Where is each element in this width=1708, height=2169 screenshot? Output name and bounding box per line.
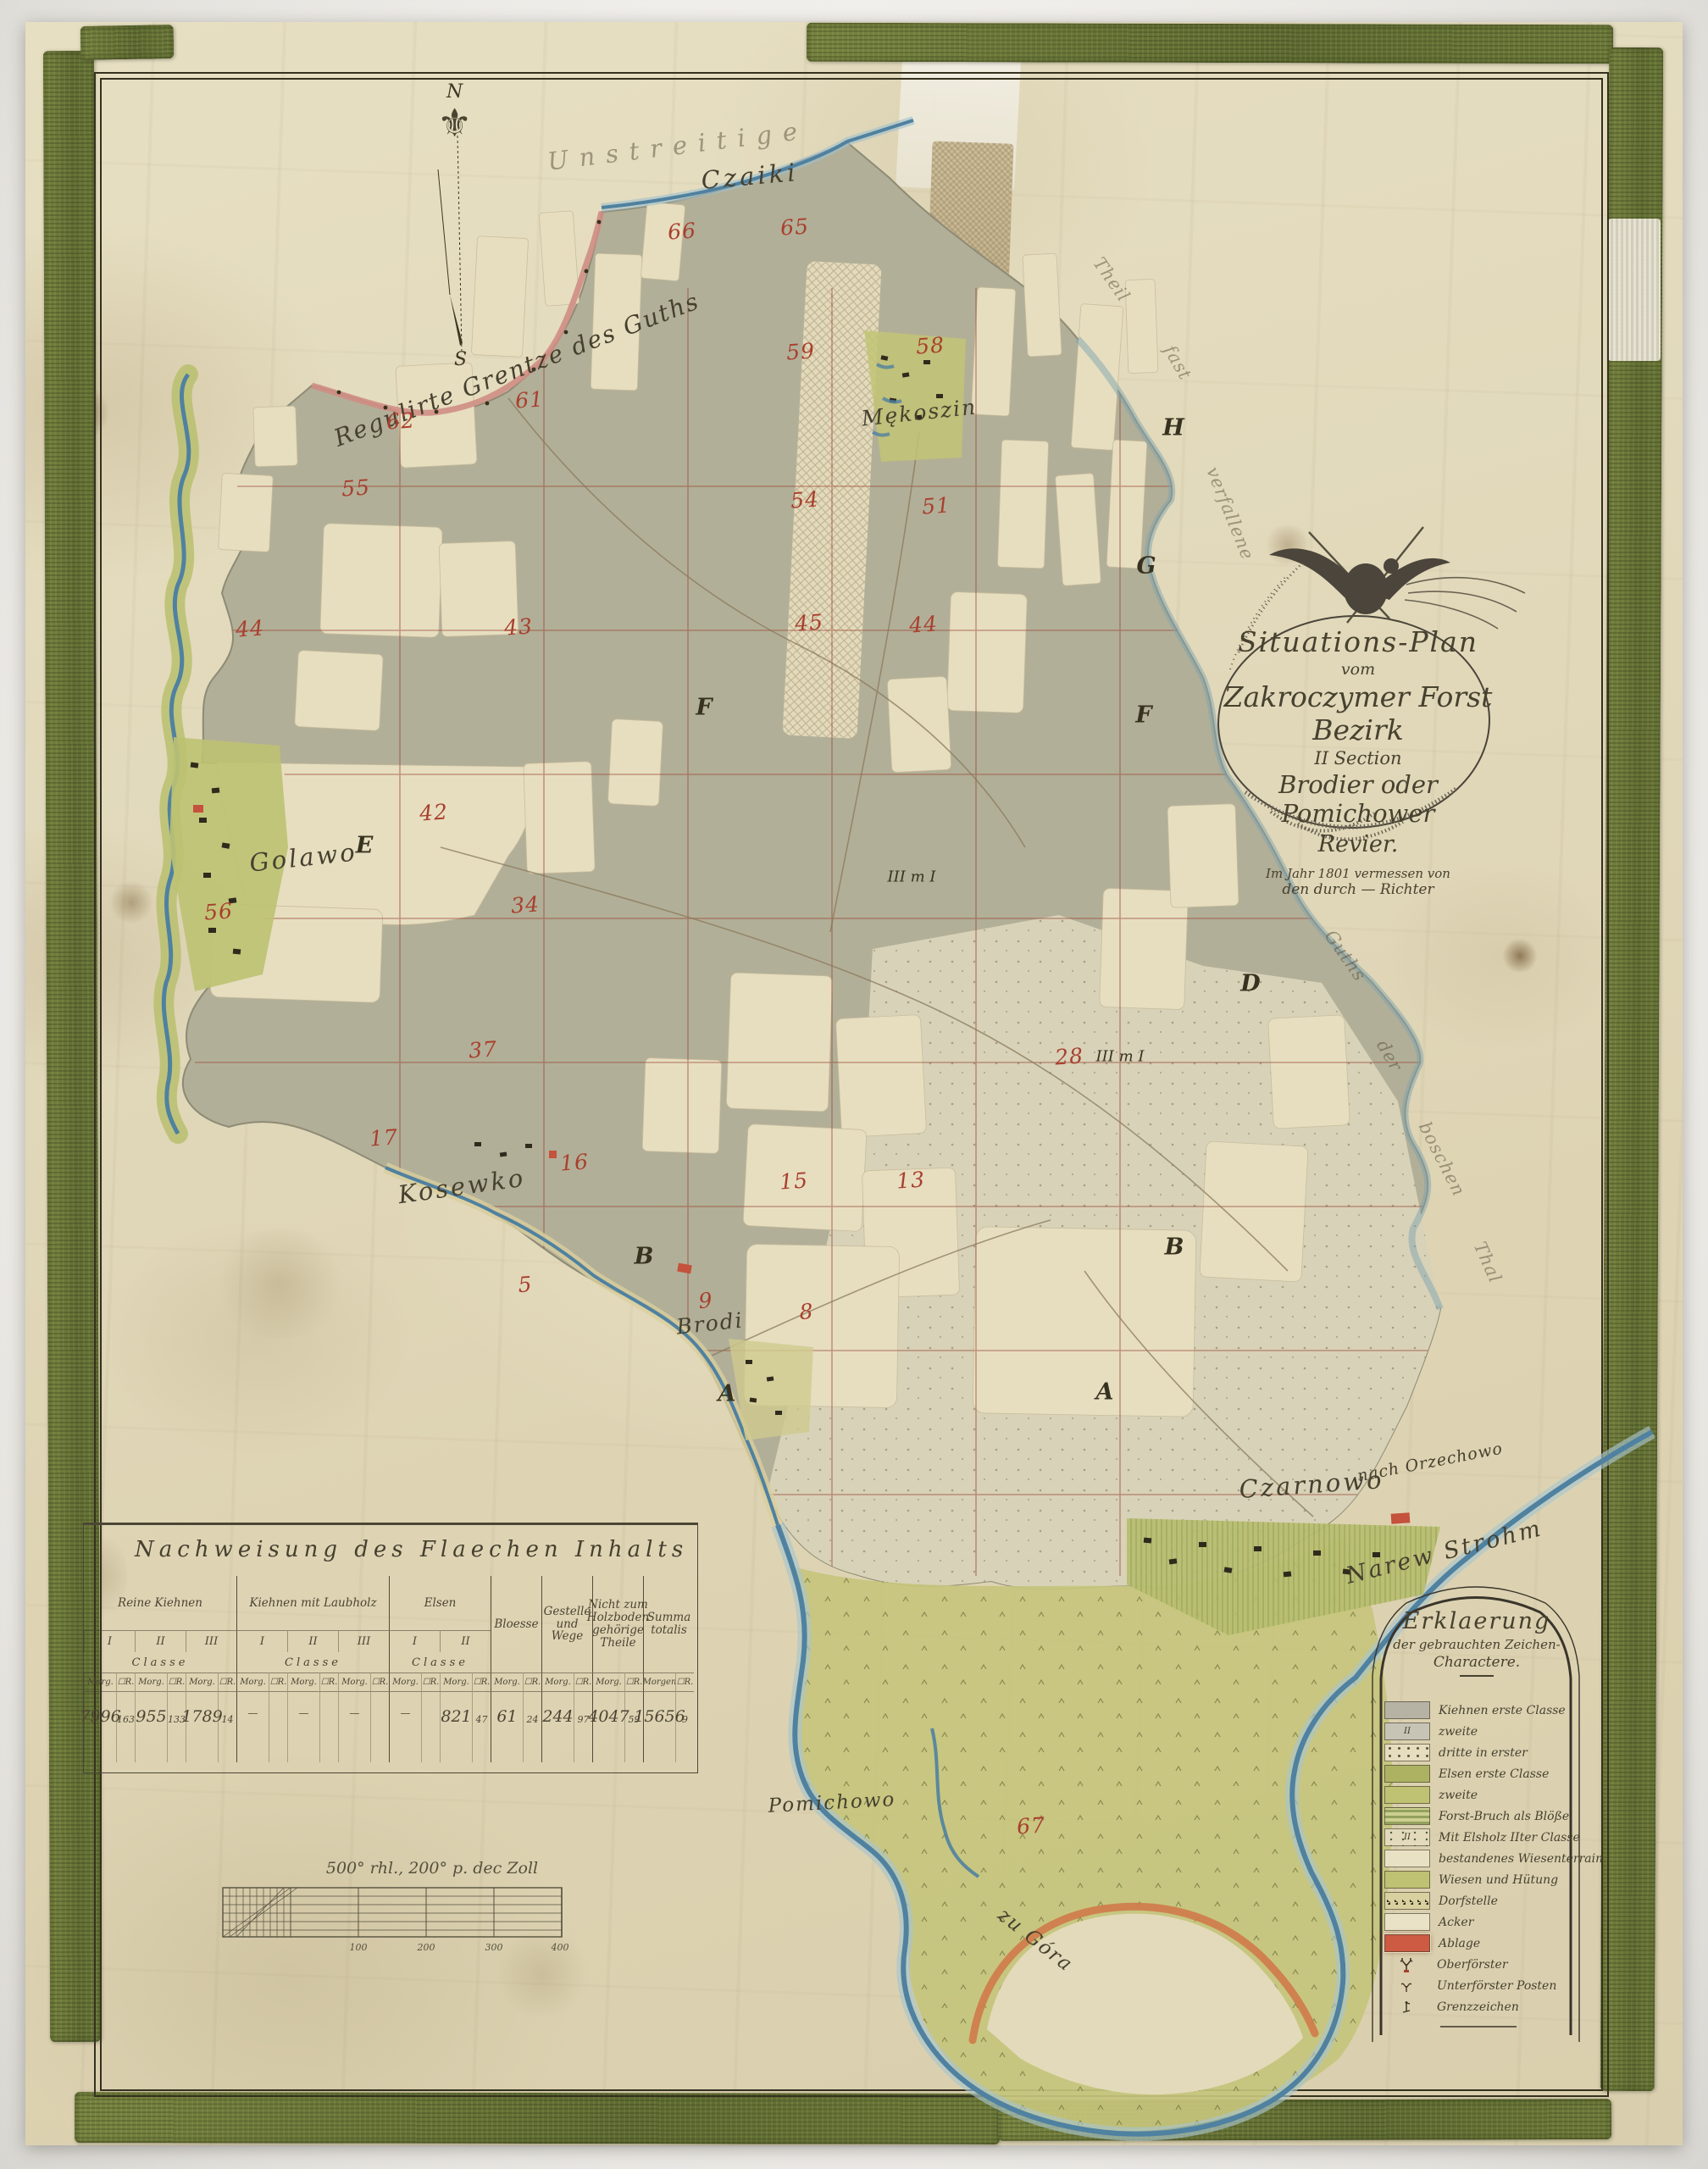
legend-item: dritte in erster [1384,1742,1574,1763]
table-value-morgen: — [389,1691,421,1762]
table-unit-rod: ☐R. [675,1673,694,1691]
compass-needle [438,136,463,352]
table-class-header: II [287,1630,338,1652]
legend-item-label: Grenzzeichen [1437,2000,1519,2014]
legend-item: Wiesen und Hütung [1384,1869,1574,1890]
legend-swatch: II [1384,1722,1430,1740]
table-group-header: Summa totalis [643,1576,694,1673]
table-unit-morgen: Morg. [592,1673,624,1691]
table-unit-morgen: Morg. [135,1673,167,1691]
table-class-header: II [440,1630,491,1652]
table-unit-rod: ☐R. [319,1673,338,1691]
legend-item-label: Mit Elsholz IIter Classe [1439,1831,1580,1844]
legend-title-rule [1460,1675,1494,1677]
table-unit-morgen: Morg. [186,1673,218,1691]
table-value-rod: 59 [624,1691,643,1762]
table-unit-rod: ☐R. [116,1673,135,1691]
table-unit-morgen: Morg. [389,1673,421,1691]
legend-swatch [1384,1786,1430,1804]
legend-item: Ablage [1384,1933,1574,1954]
legend-item-label: Acker [1439,1916,1473,1929]
table-classe-word: Classe [389,1652,491,1673]
legend-item: Unterförster Posten [1384,1975,1574,1996]
area-table-grid: Reine KiehnenIIIIIIClasseMorg.☐R.7996163… [84,1576,696,1762]
table-value-rod [269,1691,287,1762]
table-group-header: Bloesse [491,1576,541,1673]
area-table-panel: Nachweisung des Flaechen Inhalts Reine K… [83,1523,698,1773]
table-value-rod: 133 [167,1691,186,1762]
table-value-morgen: 955 [135,1691,167,1762]
table-value-morgen: — [236,1691,269,1762]
table-unit-rod: ☐R. [167,1673,186,1691]
table-value-rod: 24 [523,1691,541,1762]
table-unit-morgen: Morg. [287,1673,319,1691]
map-title-line: Situations-Plan [1218,625,1498,658]
legend-item: Grenzzeichen [1384,1996,1574,2017]
legend-item-label: Kiehnen erste Classe [1439,1704,1566,1717]
table-classe-word: Classe [84,1652,236,1673]
map-title-subline: Im Jahr 1801 vermessen von [1218,866,1498,881]
map-title-line: Zakroczymer Forst Bezirk [1218,680,1498,746]
table-class-header: II [135,1630,186,1652]
legend-swatch [1384,1871,1430,1889]
legend-item-label: Unterförster Posten [1437,1979,1556,1993]
table-unit-morgen: Morg. [236,1673,269,1691]
map-title-line: Revier. [1218,831,1498,857]
table-class-header: III [186,1630,236,1652]
legend-item-label: Dorfstelle [1439,1894,1498,1908]
table-value-morgen: 4047 [592,1691,624,1762]
table-value-morgen: 15656 [643,1691,675,1762]
legend-item-label: Elsen erste Classe [1439,1767,1549,1781]
legend-swatch [1384,1892,1430,1910]
table-value-morgen: 1789 [186,1691,218,1762]
table-group-header: Nicht zum Holzboden gehörige Theile [592,1576,643,1673]
table-class-header: I [84,1630,135,1652]
table-value-rod [370,1691,389,1762]
table-unit-morgen: Morg. [541,1673,574,1691]
table-value-rod: 14 [218,1691,236,1762]
table-group-header: Kiehnen mit Laubholz [236,1576,389,1630]
map-title-line: Brodier oder Pomichower [1218,770,1498,828]
table-unit-rod: ☐R. [574,1673,592,1691]
table-group-header: Gestelle und Wege [541,1576,592,1673]
table-classe-word: Classe [236,1652,389,1673]
table-group-header: Reine Kiehnen [84,1576,236,1630]
legend-title: Erklaerung der gebrauchten Zeichen- Char… [1381,1608,1572,1677]
scale-tick-label: 100 [350,1942,368,1953]
legend-item: Dorfstelle [1384,1890,1574,1911]
legend-item-label: zweite [1439,1789,1478,1802]
legend-swatch [1384,1850,1430,1867]
table-value-morgen: 61 [491,1691,523,1762]
grenz-icon [1384,1999,1428,2015]
legend-item: Forst-Bruch als Blöße [1384,1806,1574,1827]
table-unit-rod: ☐R. [523,1673,541,1691]
table-unit-morgen: Morg. [491,1673,523,1691]
table-unit-morgen: Morgen [643,1673,675,1691]
map-title-subline: den durch — Richter [1218,881,1498,898]
legend-item: Acker [1384,1911,1574,1933]
legend-swatch [1384,1765,1430,1783]
table-unit-rod: ☐R. [269,1673,287,1691]
legend-swatch: II [1384,1828,1430,1846]
legend-item: Elsen erste Classe [1384,1763,1574,1784]
legend-item: Kiehnen erste Classe [1384,1700,1574,1721]
legend-item-label: bestandenes Wiesenterrain [1439,1852,1603,1866]
area-table-title: Nachweisung des Flaechen Inhalts [135,1537,688,1562]
table-unit-rod: ☐R. [472,1673,491,1691]
table-unit-morgen: Morg. [440,1673,472,1691]
legend-item: Oberförster [1384,1954,1574,1975]
title-cartouche: Situations-Plan vom Zakroczymer Forst Be… [1218,625,1498,898]
legend-item: II zweite [1384,1721,1574,1742]
legend-swatch [1384,1934,1430,1952]
table-value-rod: 9 [675,1691,694,1762]
table-value-morgen: 244 [541,1691,574,1762]
table-unit-rod: ☐R. [421,1673,440,1691]
legend-swatch [1384,1744,1430,1761]
legend-item-label: Wiesen und Hütung [1439,1873,1558,1887]
table-unit-rod: ☐R. [370,1673,389,1691]
legend-item-label: dritte in erster [1439,1746,1528,1760]
table-value-rod [319,1691,338,1762]
legend-item: II Mit Elsholz IIter Classe [1384,1827,1574,1848]
legend-items: Kiehnen erste Classe II zweite dritte in… [1384,1700,1574,2017]
antler-small-icon [1384,1978,1428,1994]
table-value-morgen: — [338,1691,370,1762]
legend-item: zweite [1384,1784,1574,1806]
table-value-rod: 163 [116,1691,135,1762]
legend-item-label: Oberförster [1437,1958,1508,1972]
legend-item-label: Forst-Bruch als Blöße [1439,1810,1569,1823]
table-class-header: I [236,1630,287,1652]
scale-tick-label: 200 [418,1942,435,1953]
map-title-line: vom [1218,660,1498,679]
table-value-morgen: 7996 [84,1691,116,1762]
table-unit-rod: ☐R. [218,1673,236,1691]
table-value-morgen: 821 [440,1691,472,1762]
table-unit-rod: ☐R. [624,1673,643,1691]
legend-item-label: zweite [1439,1725,1478,1739]
legend-item: bestandenes Wiesenterrain [1384,1848,1574,1869]
legend-swatch [1384,1913,1430,1931]
table-value-morgen: — [287,1691,319,1762]
fleur-de-lis-icon: ⚜ [437,100,472,146]
legend-swatch [1384,1701,1430,1719]
legend-item-label: Ablage [1439,1937,1480,1950]
scale-tick-label: 400 [552,1942,569,1953]
table-value-rod: 97 [574,1691,592,1762]
scale-tick-label: 300 [485,1942,503,1953]
map-title-line: II Section [1218,748,1498,768]
table-class-header: III [338,1630,389,1652]
compass-south-label: S [454,349,467,370]
antler-large-icon [1384,1956,1428,1972]
table-class-header: I [389,1630,440,1652]
scale-bar-caption: 500° rhl., 200° p. dec Zoll [288,1859,576,1878]
table-unit-morgen: Morg. [84,1673,116,1691]
table-value-rod: 47 [472,1691,491,1762]
table-value-rod [421,1691,440,1762]
legend-swatch [1384,1807,1430,1825]
table-group-header: Elsen [389,1576,491,1630]
table-unit-morgen: Morg. [338,1673,370,1691]
scale-bar [223,1888,562,1937]
